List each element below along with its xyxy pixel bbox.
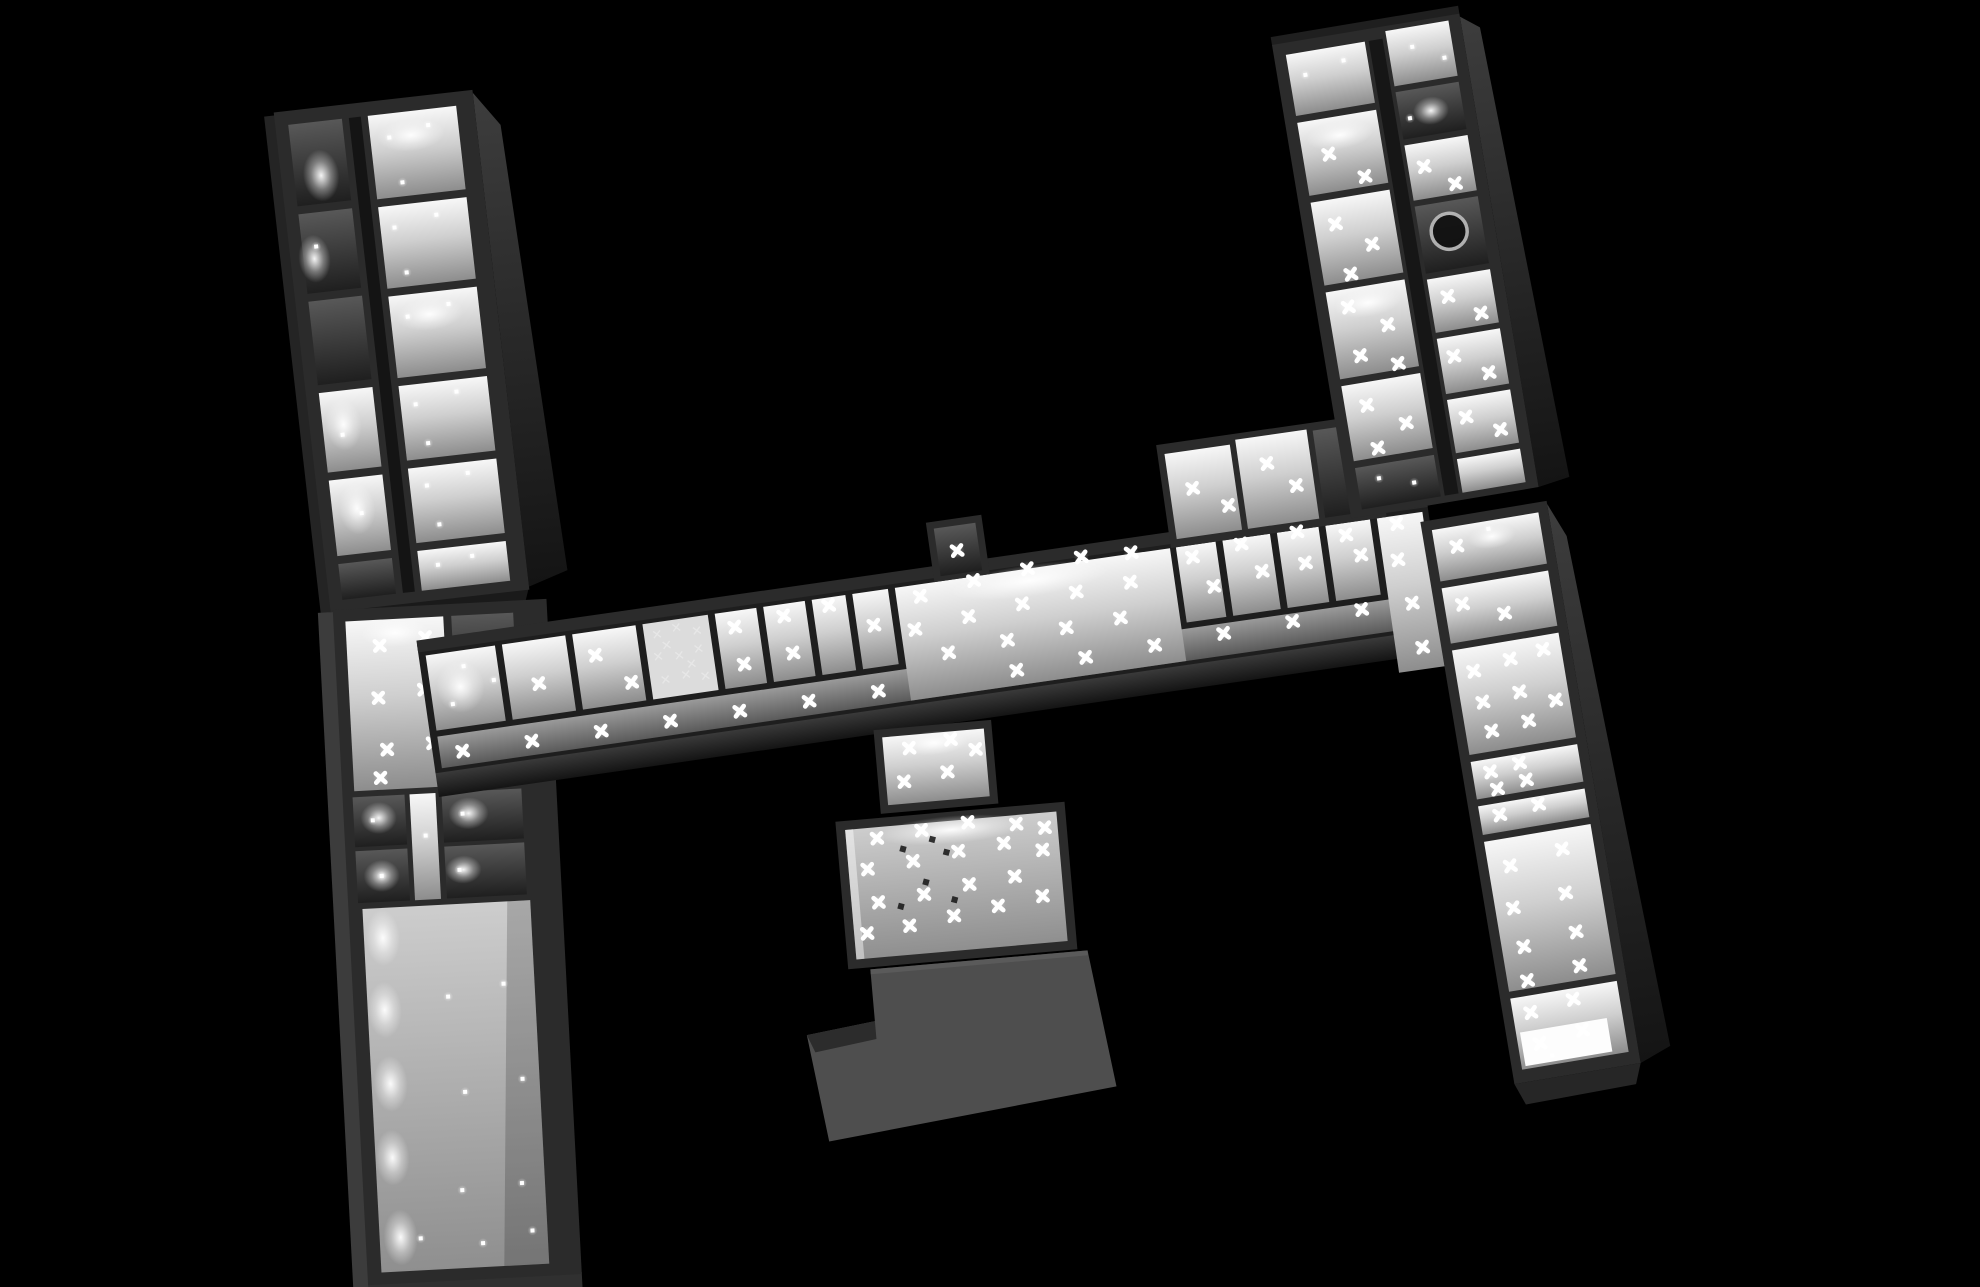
light-marker-icon <box>1112 609 1129 626</box>
light-marker-icon <box>1007 868 1023 884</box>
light-marker-icon <box>1389 551 1406 568</box>
light-marker-icon <box>1352 547 1369 564</box>
light-marker-icon <box>1184 480 1201 497</box>
light-marker-icon <box>1184 549 1201 566</box>
light-marker-icon <box>965 572 982 589</box>
light-marker-icon <box>371 690 387 706</box>
light-marker-icon <box>785 645 802 662</box>
light-marker-icon <box>916 886 932 902</box>
light-marker-icon <box>1258 455 1275 472</box>
light-marker-icon <box>859 925 875 941</box>
light-marker-icon <box>1073 548 1090 565</box>
light-marker-icon <box>454 743 471 760</box>
light-marker-icon <box>961 876 977 892</box>
light-marker-icon <box>1297 555 1314 572</box>
light-marker-icon <box>775 607 792 624</box>
light-marker-icon <box>950 843 966 859</box>
light-marker-icon <box>999 632 1016 649</box>
light-marker-icon <box>1404 595 1421 612</box>
room-floor <box>378 197 476 289</box>
light-marker-icon <box>1414 639 1431 656</box>
light-marker-icon <box>1215 625 1232 642</box>
room-floor <box>408 458 505 543</box>
light-marker-icon <box>1353 601 1370 618</box>
light-marker-icon <box>1008 662 1025 679</box>
scene-canvas: Grayscale 3D overhead dollhouse renderin… <box>0 0 1980 1287</box>
light-marker-icon <box>905 853 921 869</box>
light-marker-icon <box>990 898 1006 914</box>
light-marker-icon <box>1146 637 1163 654</box>
light-marker-icon <box>731 703 748 720</box>
light-marker-icon <box>523 733 540 750</box>
light-marker-icon <box>1123 544 1140 561</box>
light-marker-icon <box>960 814 976 830</box>
light-marker-icon <box>870 894 886 910</box>
light-marker-icon <box>996 835 1012 851</box>
room-floor <box>572 625 646 709</box>
room-floor <box>1164 445 1242 540</box>
light-marker-icon <box>1288 477 1305 494</box>
light-marker-icon <box>1288 523 1305 540</box>
light-marker-icon <box>1220 497 1237 514</box>
room-floor <box>1404 135 1476 201</box>
light-marker-icon <box>1019 560 1036 577</box>
room-floor <box>308 296 371 386</box>
light-marker-icon <box>801 693 818 710</box>
light-marker-icon <box>593 723 610 740</box>
light-marker-icon <box>379 742 395 758</box>
light-marker-icon <box>1122 574 1139 591</box>
light-marker-icon <box>1034 842 1050 858</box>
light-marker-icon <box>949 542 966 559</box>
light-marker-icon <box>896 774 912 790</box>
light-marker-icon <box>1337 526 1354 543</box>
light-marker-icon <box>865 617 882 634</box>
light-marker-icon <box>726 619 743 636</box>
corridor-floor <box>409 793 441 900</box>
light-marker-icon <box>820 597 837 614</box>
light-marker-icon <box>587 647 604 664</box>
light-marker-icon <box>901 740 917 756</box>
light-marker-icon <box>1034 888 1050 904</box>
room-floor <box>1427 269 1499 333</box>
light-marker-icon <box>946 908 962 924</box>
light-marker-icon <box>859 861 875 877</box>
light-marker-icon <box>906 621 923 638</box>
light-marker-icon <box>736 656 753 673</box>
light-marker-icon <box>939 764 955 780</box>
light-marker-icon <box>869 830 885 846</box>
light-marker-icon <box>870 683 887 700</box>
light-marker-icon <box>902 918 918 934</box>
light-marker-icon <box>960 608 977 625</box>
room-floor <box>1341 373 1432 461</box>
light-marker-icon <box>1284 613 1301 630</box>
light-marker-icon <box>942 731 958 747</box>
light-marker-icon <box>1077 649 1094 666</box>
light-marker-icon <box>1254 563 1271 580</box>
room-floor <box>642 615 718 700</box>
light-marker-icon <box>1388 515 1405 532</box>
light-marker-icon <box>913 822 929 838</box>
light-marker-icon <box>662 713 679 730</box>
light-marker-icon <box>623 674 640 691</box>
light-marker-icon <box>1068 584 1085 601</box>
light-marker-icon <box>1014 595 1031 612</box>
light-marker-icon <box>940 644 957 661</box>
light-marker-icon <box>1205 578 1222 595</box>
light-marker-icon <box>1008 816 1024 832</box>
room-floor <box>1447 389 1519 453</box>
light-marker-icon <box>372 638 388 654</box>
room-floor <box>398 376 495 461</box>
room-floor <box>1437 328 1509 394</box>
light-marker-icon <box>1037 819 1053 835</box>
light-marker-icon <box>530 675 547 692</box>
room-floor <box>1235 430 1319 529</box>
room-floor <box>1286 42 1375 116</box>
light-marker-icon <box>1058 619 1075 636</box>
light-marker-icon <box>967 741 983 757</box>
room-floor <box>338 558 396 600</box>
light-marker-icon <box>912 588 929 605</box>
light-marker-icon <box>373 770 389 786</box>
light-marker-icon <box>1233 536 1250 553</box>
